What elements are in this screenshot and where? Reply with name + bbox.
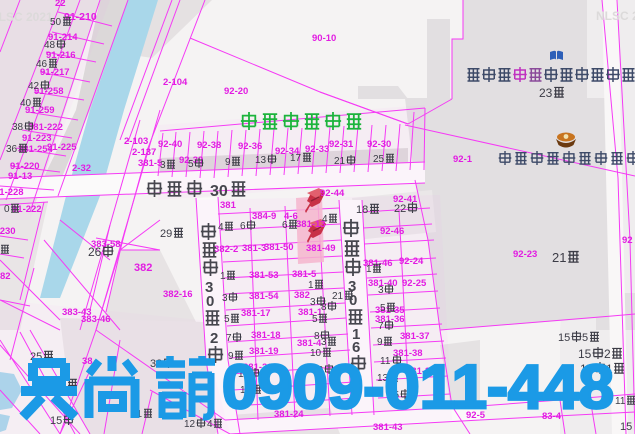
svg-text:0909-011-448: 0909-011-448 [222, 353, 614, 422]
svg-text:0: 0 [4, 204, 10, 215]
svg-text:381-18: 381-18 [251, 330, 281, 341]
svg-text:92-23: 92-23 [513, 249, 537, 260]
svg-text:4: 4 [322, 214, 328, 225]
svg-text:3: 3 [222, 293, 228, 304]
svg-text:8: 8 [321, 302, 327, 313]
svg-text:92-1: 92-1 [453, 154, 473, 165]
svg-text:6: 6 [240, 221, 246, 232]
svg-text:381-43: 381-43 [373, 422, 403, 433]
svg-text:82: 82 [0, 271, 11, 282]
svg-text:15: 15 [50, 415, 62, 427]
svg-text:92-38: 92-38 [197, 140, 221, 151]
svg-text:2-103: 2-103 [124, 136, 148, 147]
svg-text:21: 21 [552, 250, 566, 265]
svg-text:13: 13 [255, 155, 267, 166]
svg-text:91-230: 91-230 [0, 226, 16, 237]
svg-text:NLSC 2: NLSC 2 [596, 9, 635, 23]
svg-text:11: 11 [615, 396, 626, 407]
svg-text:8: 8 [314, 331, 320, 342]
svg-text:17: 17 [290, 153, 302, 164]
svg-text:7: 7 [378, 321, 384, 332]
svg-text:2-137: 2-137 [132, 147, 156, 158]
svg-text:92-20: 92-20 [224, 86, 248, 97]
svg-text:92-30: 92-30 [367, 139, 391, 150]
svg-text:1: 1 [308, 280, 314, 291]
svg-text:9: 9 [225, 157, 231, 168]
svg-text:381-53: 381-53 [249, 270, 279, 281]
svg-text:92-46: 92-46 [380, 226, 404, 237]
svg-text:92-36: 92-36 [238, 141, 262, 152]
svg-text:90-10: 90-10 [312, 33, 336, 44]
svg-text:3: 3 [321, 337, 327, 348]
svg-text:92: 92 [622, 235, 633, 246]
svg-text:91-13: 91-13 [8, 171, 32, 182]
svg-text:21: 21 [334, 156, 346, 167]
svg-text:92-44: 92-44 [320, 188, 345, 199]
svg-text:26: 26 [88, 245, 102, 259]
svg-text:3: 3 [378, 285, 384, 296]
svg-text:381-49: 381-49 [306, 243, 336, 254]
svg-text:381-17: 381-17 [241, 308, 271, 319]
svg-text:92-24: 92-24 [399, 256, 424, 267]
svg-text:30: 30 [210, 183, 228, 200]
svg-text:382: 382 [294, 290, 310, 301]
svg-text:383-46: 383-46 [81, 314, 111, 325]
svg-text:42: 42 [28, 81, 40, 92]
svg-text:6: 6 [282, 220, 288, 231]
svg-text:40: 40 [20, 98, 32, 109]
svg-text:5: 5 [188, 159, 194, 170]
svg-text:92-25: 92-25 [402, 278, 427, 289]
svg-text:381-222: 381-222 [28, 122, 63, 133]
svg-text:381: 381 [220, 200, 237, 211]
svg-text:NLSC 2021: NLSC 2021 [0, 10, 53, 24]
svg-text:382: 382 [134, 262, 152, 274]
svg-text:25: 25 [373, 154, 385, 165]
svg-text:2-32: 2-32 [72, 163, 91, 174]
svg-text:91-225: 91-225 [47, 142, 77, 153]
svg-text:22: 22 [394, 203, 406, 215]
svg-text:29: 29 [160, 228, 172, 240]
svg-text:381-54: 381-54 [249, 291, 279, 302]
svg-text:382-2: 382-2 [214, 244, 238, 255]
svg-text:92-40: 92-40 [158, 139, 182, 150]
svg-text:4: 4 [218, 222, 224, 233]
svg-text:382-16: 382-16 [163, 289, 193, 300]
svg-text:15: 15 [620, 421, 632, 433]
svg-text:18: 18 [356, 204, 368, 216]
svg-text:7: 7 [226, 333, 232, 344]
svg-text:38: 38 [12, 122, 24, 133]
svg-text:5: 5 [380, 303, 386, 314]
svg-text:5: 5 [312, 314, 318, 325]
svg-text:23: 23 [539, 86, 553, 100]
svg-text:50: 50 [50, 17, 62, 28]
svg-text:92-31: 92-31 [329, 139, 354, 150]
svg-text:15: 15 [558, 332, 570, 344]
svg-text:381-5: 381-5 [292, 269, 317, 280]
svg-text:48: 48 [44, 40, 56, 51]
svg-text:12: 12 [184, 419, 196, 430]
svg-text:381-3: 381-3 [242, 243, 266, 254]
svg-text:381-1: 381-1 [298, 307, 323, 318]
svg-text:5: 5 [224, 314, 230, 325]
svg-text:1: 1 [220, 271, 226, 282]
svg-text:3: 3 [310, 297, 316, 308]
svg-text:3: 3 [160, 160, 166, 171]
svg-text:2-104: 2-104 [163, 77, 188, 88]
svg-text:36: 36 [6, 144, 18, 155]
svg-text:2: 2 [210, 330, 218, 347]
svg-text:21: 21 [332, 291, 344, 302]
svg-text:46: 46 [36, 59, 48, 70]
svg-text:22: 22 [55, 0, 66, 9]
svg-text:1: 1 [366, 264, 372, 275]
svg-text:5: 5 [582, 332, 588, 344]
svg-text:9: 9 [377, 337, 383, 348]
svg-text:384-9: 384-9 [252, 211, 276, 222]
svg-text:4: 4 [207, 419, 213, 430]
svg-text:91-228: 91-228 [0, 187, 24, 198]
svg-text:381-50: 381-50 [264, 242, 294, 253]
svg-text:0: 0 [206, 293, 214, 310]
svg-text:381-37: 381-37 [400, 331, 430, 342]
svg-text:0: 0 [349, 292, 357, 309]
